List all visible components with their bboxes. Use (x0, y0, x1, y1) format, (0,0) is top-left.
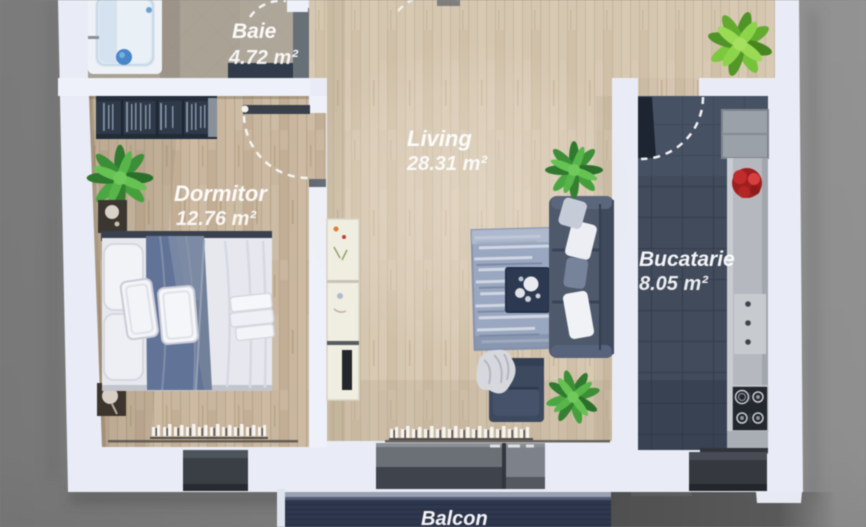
svg-text:Balcon: Balcon (421, 508, 488, 527)
svg-text:8.05 m²: 8.05 m² (639, 273, 709, 295)
svg-text:Living: Living (407, 126, 472, 151)
svg-text:Baie: Baie (232, 20, 277, 43)
svg-text:Bucatarie: Bucatarie (639, 248, 735, 271)
svg-text:Dormitor: Dormitor (174, 181, 268, 206)
svg-text:28.31 m²: 28.31 m² (406, 153, 488, 175)
svg-text:12.76 m²: 12.76 m² (176, 208, 257, 230)
svg-text:4.72 m²: 4.72 m² (228, 47, 299, 69)
